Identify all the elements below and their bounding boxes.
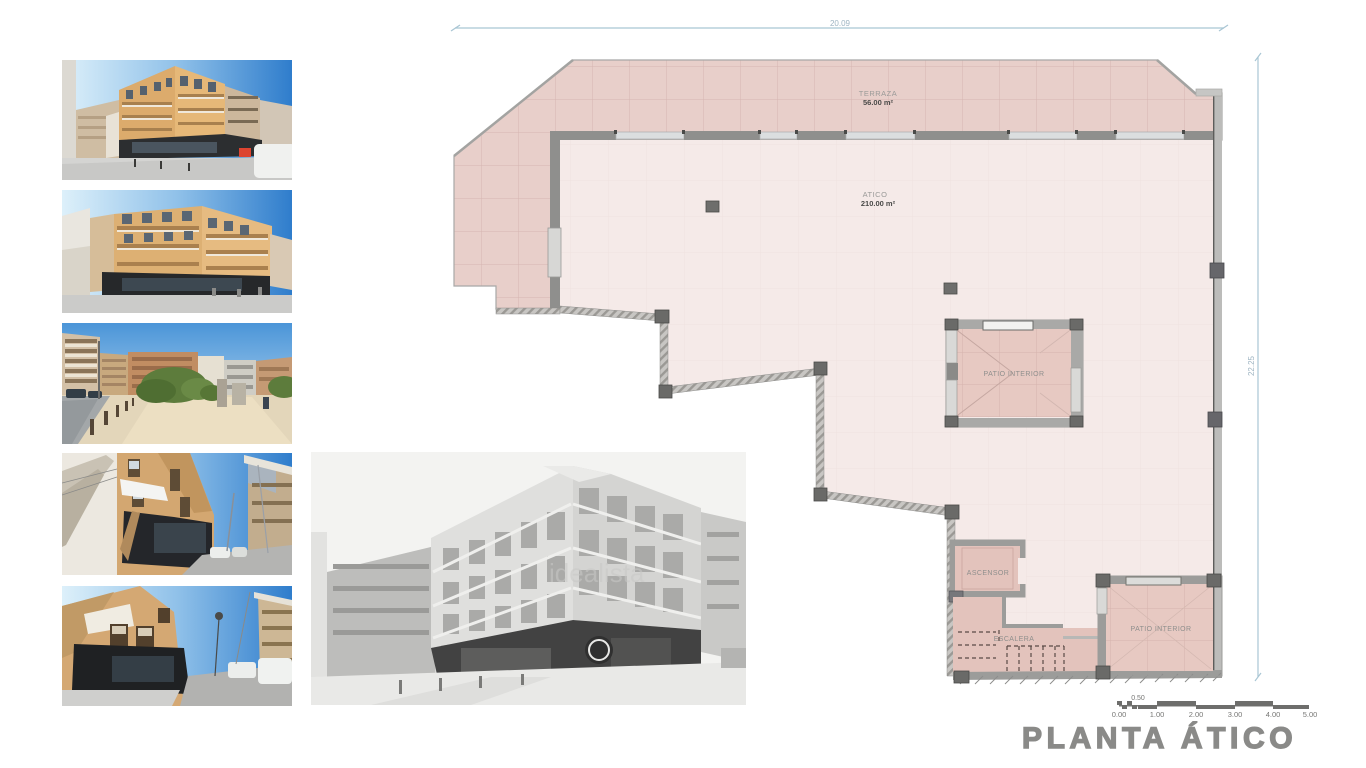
svg-text:56.00 m²: 56.00 m² [863, 98, 894, 107]
svg-text:2.00: 2.00 [1189, 710, 1204, 719]
svg-text:0.50: 0.50 [1131, 695, 1145, 702]
svg-text:0.00: 0.00 [1112, 710, 1127, 719]
svg-text:210.00 m²: 210.00 m² [861, 199, 896, 208]
svg-text:ATICO: ATICO [863, 190, 888, 199]
svg-text:ESCALERA: ESCALERA [994, 636, 1035, 643]
svg-text:PATIO INTERIOR: PATIO INTERIOR [984, 371, 1045, 378]
svg-text:5.00: 5.00 [1303, 710, 1318, 719]
svg-text:idealista: idealista [549, 558, 645, 588]
svg-text:TERRAZA: TERRAZA [859, 89, 898, 98]
svg-text:3.00: 3.00 [1228, 710, 1243, 719]
svg-text:1.00: 1.00 [1150, 710, 1165, 719]
svg-text:PLANTA ÁTICO: PLANTA ÁTICO [1022, 721, 1297, 755]
svg-text:ASCENSOR: ASCENSOR [967, 570, 1010, 577]
svg-text:PATIO INTERIOR: PATIO INTERIOR [1131, 626, 1192, 633]
svg-text:22.25: 22.25 [1247, 355, 1256, 376]
svg-text:4.00: 4.00 [1266, 710, 1281, 719]
svg-text:20.09: 20.09 [830, 19, 851, 28]
